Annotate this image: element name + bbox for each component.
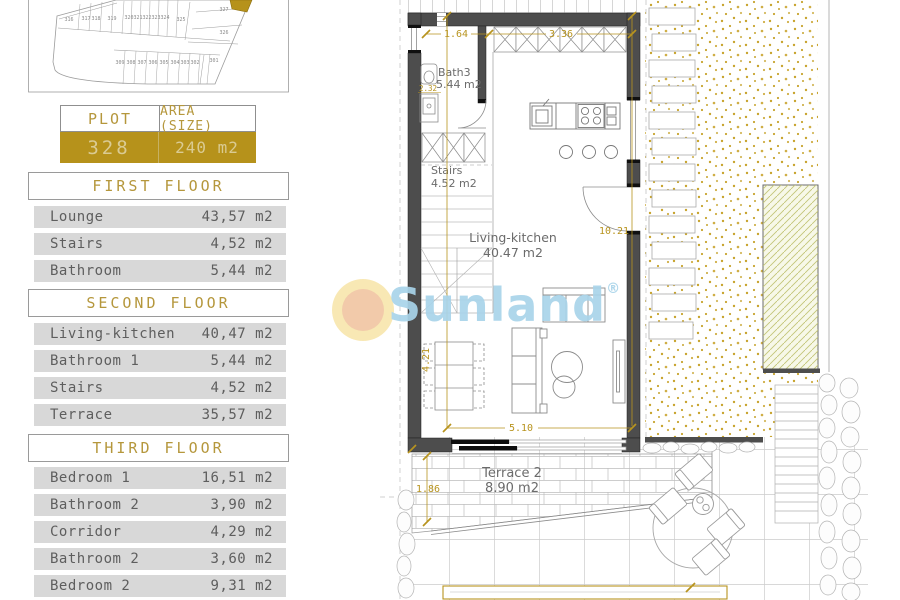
svg-text:307: 307 bbox=[137, 60, 146, 66]
bath-area: 5.44 m2 bbox=[436, 78, 482, 91]
terrace-area: 8.90 m2 bbox=[485, 481, 539, 496]
entry-door bbox=[583, 187, 627, 231]
garden bbox=[645, 0, 820, 443]
plot-area-value: 240 m2 bbox=[159, 132, 255, 163]
side-table-icon bbox=[552, 352, 583, 383]
room-area: 3,60 m2 bbox=[210, 551, 273, 567]
patio-table bbox=[693, 494, 714, 515]
room-row: Bathroom5,44 m2 bbox=[34, 260, 286, 282]
outdoor-stairs bbox=[775, 385, 818, 523]
svg-text:306: 306 bbox=[148, 60, 157, 66]
living-area: 40.47 m2 bbox=[483, 245, 543, 260]
room-name: Stairs bbox=[50, 380, 104, 396]
room-area: 4,52 m2 bbox=[210, 380, 273, 396]
room-name: Bathroom 1 bbox=[50, 353, 139, 369]
room-name: Terrace bbox=[50, 407, 113, 423]
room-row: Living-kitchen40,47 m2 bbox=[34, 323, 286, 345]
svg-text:302: 302 bbox=[190, 60, 199, 66]
svg-text:308: 308 bbox=[126, 60, 135, 66]
sofa-icon bbox=[512, 328, 542, 413]
dimension-labels: 1.64 3.36 10.21 4.21 5.10 1.86 2.32 bbox=[416, 29, 629, 495]
room-area: 5,44 m2 bbox=[210, 353, 273, 369]
plot-table-header: PLOT AREA (SIZE) bbox=[60, 105, 256, 132]
room-row: Bathroom 15,44 m2 bbox=[34, 350, 286, 372]
sofa-icon bbox=[543, 288, 605, 322]
plot-header-cell: PLOT bbox=[61, 106, 160, 131]
svg-text:10.21: 10.21 bbox=[599, 226, 629, 237]
room-name: Living-kitchen bbox=[50, 326, 175, 342]
svg-text:318: 318 bbox=[91, 16, 100, 22]
plot-table-values: 328 240 m2 bbox=[60, 132, 256, 163]
room-name: Bedroom 2 bbox=[50, 578, 130, 594]
stool-icon bbox=[560, 146, 573, 159]
room-name: Bathroom 2 bbox=[50, 551, 139, 567]
room-labels: Bath3 5.44 m2 Stairs 4.52 m2 Living-kitc… bbox=[431, 66, 557, 260]
section-header-third-floor: THIRD FLOOR bbox=[28, 434, 289, 462]
room-area: 5,44 m2 bbox=[210, 263, 273, 279]
svg-text:316: 316 bbox=[64, 17, 73, 23]
room-area: 9,31 m2 bbox=[210, 578, 273, 594]
svg-text:304: 304 bbox=[170, 60, 179, 66]
room-row: Lounge43,57 m2 bbox=[34, 206, 286, 228]
room-row: Corridor4,29 m2 bbox=[34, 521, 286, 543]
svg-text:5.10: 5.10 bbox=[509, 423, 533, 434]
svg-text:321: 321 bbox=[133, 15, 142, 21]
garden-border bbox=[645, 437, 763, 443]
room-name: Bathroom 2 bbox=[50, 497, 139, 513]
room-row: Bedroom 29,31 m2 bbox=[34, 575, 286, 597]
room-area: 35,57 m2 bbox=[202, 407, 273, 423]
kitchen-island bbox=[530, 99, 620, 159]
dining-set bbox=[424, 342, 484, 410]
room-area: 16,51 m2 bbox=[202, 470, 273, 486]
svg-text:4.21: 4.21 bbox=[421, 348, 432, 372]
section-header-second-floor: SECOND FLOOR bbox=[28, 289, 289, 317]
svg-text:305: 305 bbox=[159, 60, 168, 66]
toilet-icon bbox=[421, 64, 437, 84]
site-plan: 316 317 318 319 320 321 322 323 324 325 … bbox=[28, 0, 290, 93]
room-row: Bedroom 116,51 m2 bbox=[34, 467, 286, 489]
room-area: 4,52 m2 bbox=[210, 236, 273, 252]
room-row: Stairs4,52 m2 bbox=[34, 377, 286, 399]
dining-table bbox=[435, 342, 473, 410]
hall-wardrobe bbox=[422, 133, 485, 162]
svg-text:322: 322 bbox=[142, 15, 151, 21]
svg-text:2.32: 2.32 bbox=[419, 84, 437, 93]
svg-text:323: 323 bbox=[151, 15, 160, 21]
room-row: Terrace35,57 m2 bbox=[34, 404, 286, 426]
section-header-first-floor: FIRST FLOOR bbox=[28, 172, 289, 200]
walkway-strip bbox=[408, 0, 640, 13]
bath-door-arc bbox=[458, 100, 486, 128]
svg-text:326: 326 bbox=[219, 30, 228, 36]
room-name: Bedroom 1 bbox=[50, 470, 130, 486]
stairs-area: 4.52 m2 bbox=[431, 177, 477, 190]
stool-icon bbox=[605, 146, 618, 159]
room-row: Bathroom 23,60 m2 bbox=[34, 548, 286, 570]
wall-jambs bbox=[408, 25, 640, 235]
plot-table: PLOT AREA (SIZE) 328 240 m2 bbox=[60, 105, 256, 163]
floor-plan-drawing: Terrace 2 8.90 m2 bbox=[380, 0, 900, 600]
svg-text:324: 324 bbox=[160, 15, 169, 21]
floorplan-page: 316 317 318 319 320 321 322 323 324 325 … bbox=[0, 0, 900, 600]
svg-text:309: 309 bbox=[115, 60, 124, 66]
stool-icon bbox=[583, 146, 596, 159]
svg-text:1.86: 1.86 bbox=[416, 484, 440, 495]
room-row: Bathroom 23,90 m2 bbox=[34, 494, 286, 516]
svg-text:1.64: 1.64 bbox=[444, 29, 468, 40]
svg-text:319: 319 bbox=[107, 16, 116, 22]
svg-text:325: 325 bbox=[176, 17, 185, 23]
plot-number-value: 328 bbox=[60, 132, 159, 163]
room-area: 43,57 m2 bbox=[202, 209, 273, 225]
svg-text:3.36: 3.36 bbox=[549, 29, 573, 40]
room-name: Stairs bbox=[50, 236, 104, 252]
room-name: Corridor bbox=[50, 524, 121, 540]
terrace-label: Terrace 2 bbox=[481, 466, 542, 481]
stove-icon bbox=[578, 105, 604, 128]
svg-text:303: 303 bbox=[180, 60, 189, 66]
area-header-cell: AREA (SIZE) bbox=[160, 106, 255, 131]
garden-hatch-bed bbox=[763, 185, 818, 369]
svg-text:317: 317 bbox=[81, 16, 90, 22]
living-label: Living-kitchen bbox=[469, 230, 557, 245]
room-area: 40,47 m2 bbox=[202, 326, 273, 342]
highlighted-plot-328 bbox=[230, 0, 252, 12]
room-name: Bathroom bbox=[50, 263, 121, 279]
room-area: 3,90 m2 bbox=[210, 497, 273, 513]
svg-text:327: 327 bbox=[219, 7, 228, 13]
room-name: Lounge bbox=[50, 209, 104, 225]
svg-text:320: 320 bbox=[124, 15, 133, 21]
lounge-furniture bbox=[512, 288, 625, 413]
room-area: 4,29 m2 bbox=[210, 524, 273, 540]
room-row: Stairs4,52 m2 bbox=[34, 233, 286, 255]
svg-text:301: 301 bbox=[209, 58, 218, 64]
